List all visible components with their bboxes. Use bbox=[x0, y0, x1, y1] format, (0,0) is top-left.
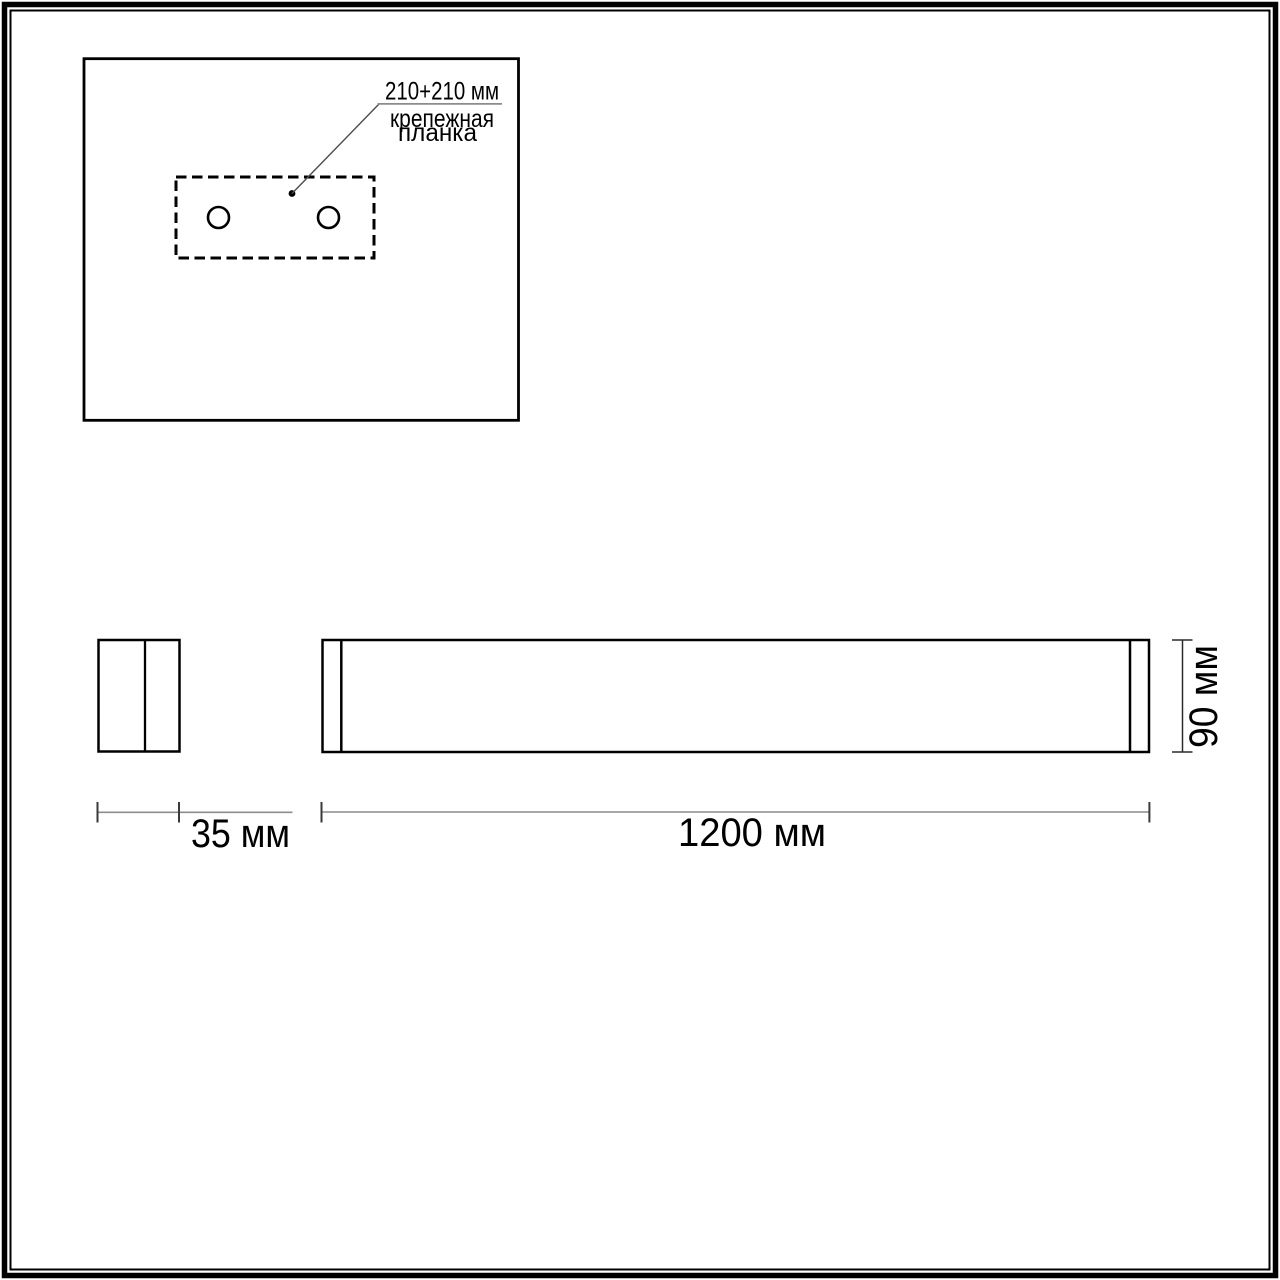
svg-text:35 мм: 35 мм bbox=[191, 812, 290, 856]
svg-text:планка: планка bbox=[398, 119, 477, 147]
svg-text:90 мм: 90 мм bbox=[1182, 645, 1226, 748]
svg-text:210+210 мм: 210+210 мм bbox=[385, 78, 499, 106]
svg-text:1200 мм: 1200 мм bbox=[678, 811, 826, 855]
